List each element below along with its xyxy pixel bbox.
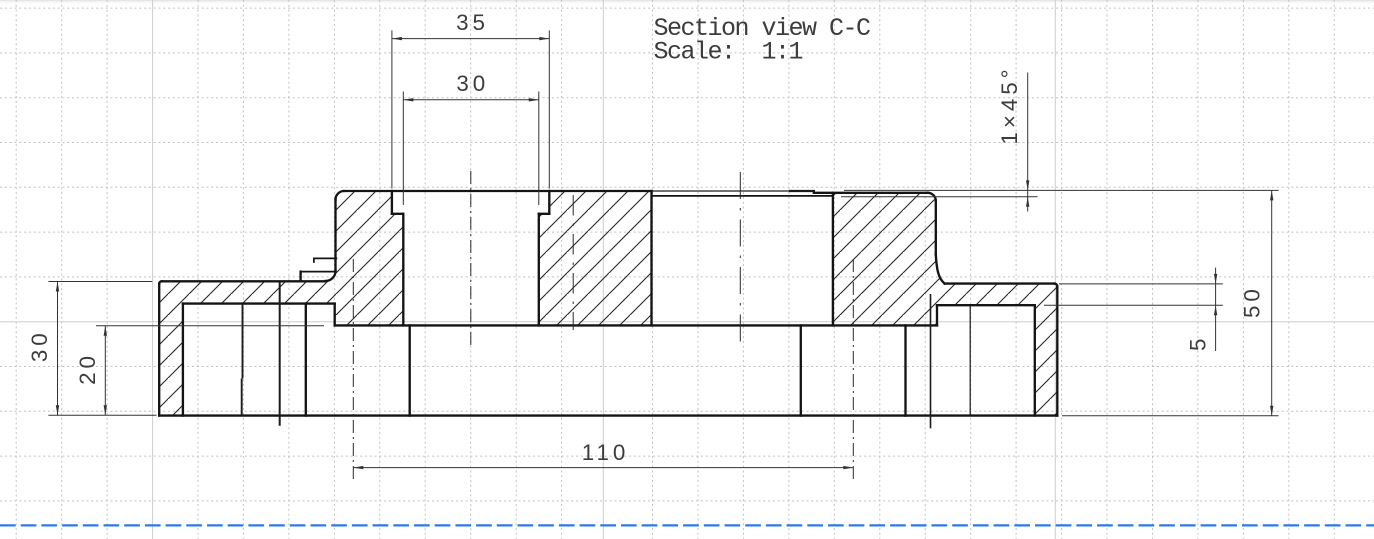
svg-text:30: 30 xyxy=(27,329,52,362)
svg-text:30: 30 xyxy=(456,71,489,96)
svg-text:35: 35 xyxy=(456,10,489,35)
svg-text:Scale: 1:1: Scale: 1:1 xyxy=(654,38,803,67)
svg-text:20: 20 xyxy=(75,352,100,385)
svg-text:5: 5 xyxy=(1185,335,1210,351)
svg-text:50: 50 xyxy=(1240,285,1265,318)
svg-text:1×45°: 1×45° xyxy=(997,65,1022,144)
svg-text:110: 110 xyxy=(582,440,630,465)
